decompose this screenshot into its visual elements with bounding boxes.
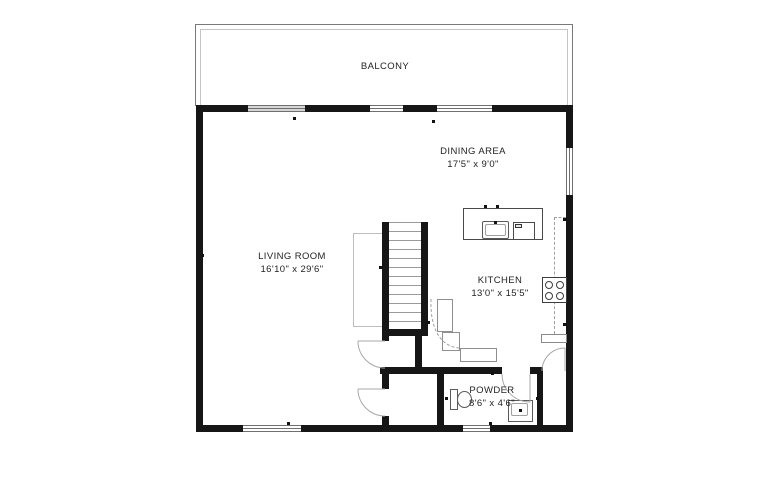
room-name: BALCONY <box>285 60 485 73</box>
dimension-dot <box>491 372 494 375</box>
door-arc <box>358 341 385 368</box>
balcony-label: BALCONY <box>285 60 485 73</box>
window <box>243 425 301 432</box>
counter-section <box>442 332 460 351</box>
window <box>437 105 492 112</box>
counter-section <box>437 299 453 332</box>
left-wall-stub <box>382 416 389 425</box>
room-dims: 8'6" x 4'6" <box>392 397 592 410</box>
floorplan-canvas: BALCONY DINING AREA 17'5" x 9'0" LIVING … <box>0 0 768 480</box>
room-dims: 16'10" x 29'6" <box>192 263 392 276</box>
room-name: KITCHEN <box>400 274 600 287</box>
dimension-dot <box>287 422 290 425</box>
sink-basin <box>485 224 506 236</box>
dimension-dot <box>432 120 435 123</box>
room-name: LIVING ROOM <box>192 250 392 263</box>
hall-wall-top <box>380 367 443 374</box>
powder-label: POWDER 8'6" x 4'6" <box>392 384 592 410</box>
window-mullion <box>248 108 305 109</box>
dining-area-label: DINING AREA 17'5" x 9'0" <box>373 145 573 171</box>
window <box>463 425 490 432</box>
understairs-outline <box>353 233 383 327</box>
room-dims: 13'0" x 15'5" <box>400 287 600 300</box>
powder-wall-top-stub <box>530 367 543 374</box>
dimension-dot <box>489 422 492 425</box>
living-room-label: LIVING ROOM 16'10" x 29'6" <box>192 250 392 276</box>
window <box>248 105 305 112</box>
dimension-dot <box>427 321 430 324</box>
stair-wall-cap <box>382 329 428 336</box>
room-name: POWDER <box>392 384 592 397</box>
counter-section <box>460 348 497 362</box>
door-arc <box>542 348 565 371</box>
window-mullion <box>243 428 301 429</box>
dimension-dot <box>496 205 499 208</box>
window-mullion <box>463 428 490 429</box>
kitchen-label: KITCHEN 13'0" x 15'5" <box>400 274 600 300</box>
room-name: DINING AREA <box>373 145 573 158</box>
room-dims: 17'5" x 9'0" <box>373 158 573 171</box>
stair-wall-left <box>382 222 389 334</box>
window <box>370 105 403 112</box>
counter-end-cabinet <box>541 334 567 343</box>
door-arc <box>358 389 385 416</box>
window-mullion <box>437 108 492 109</box>
dishwasher-panel <box>515 224 522 228</box>
dimension-dot <box>293 117 296 120</box>
window-mullion <box>370 108 403 109</box>
dimension-dot <box>563 218 566 221</box>
left-wall-stub <box>382 336 389 341</box>
dimension-dot <box>484 205 487 208</box>
dimension-dot <box>563 323 566 326</box>
left-wall-stub <box>382 374 389 389</box>
faucet-icon <box>494 221 497 224</box>
